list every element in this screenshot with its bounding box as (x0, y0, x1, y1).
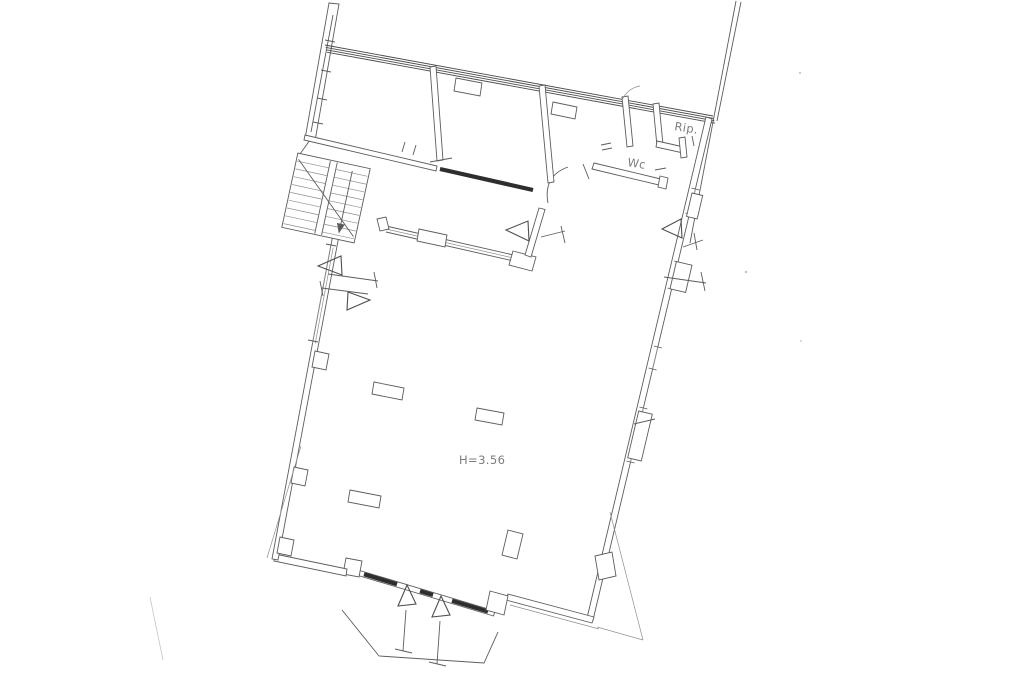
label-toilet: Wc (627, 155, 647, 172)
label-storage: Rip. (674, 119, 700, 137)
bottom-left-wall (274, 554, 347, 576)
scan-artifacts (150, 72, 802, 660)
left-wall-pier (277, 537, 294, 556)
jamb (377, 217, 389, 231)
window-sill (551, 102, 577, 119)
window-sill (454, 78, 482, 96)
window-sill (417, 229, 447, 247)
main-room (348, 382, 523, 559)
pillar (502, 530, 523, 559)
rip-wall (653, 103, 663, 146)
window-triangle-icon (347, 292, 370, 310)
left-wall-pier (312, 351, 329, 370)
window-triangle-icon (506, 221, 529, 241)
left-wall (267, 229, 378, 560)
section-wall-dark (440, 169, 533, 190)
pillar (475, 408, 504, 425)
partition-wall (430, 66, 443, 161)
pillar (348, 490, 381, 508)
partition-wall (539, 85, 554, 183)
window-triangle-icon (662, 219, 682, 238)
right-wall-corner-pier (595, 552, 616, 580)
floor-plan-svg: Rip. Wc H=3.56 (0, 0, 1024, 682)
floor-plan-canvas: Rip. Wc H=3.56 (0, 0, 1024, 682)
right-wall (587, 117, 712, 640)
upper-rooms (430, 66, 694, 189)
top-left-stub-wall (300, 3, 339, 154)
porch-step (342, 610, 498, 663)
bottom-right-wall (506, 594, 599, 629)
staircase (282, 153, 370, 243)
label-ceiling-height: H=3.56 (459, 453, 505, 467)
pillar (372, 382, 404, 400)
entry-front (274, 554, 508, 666)
